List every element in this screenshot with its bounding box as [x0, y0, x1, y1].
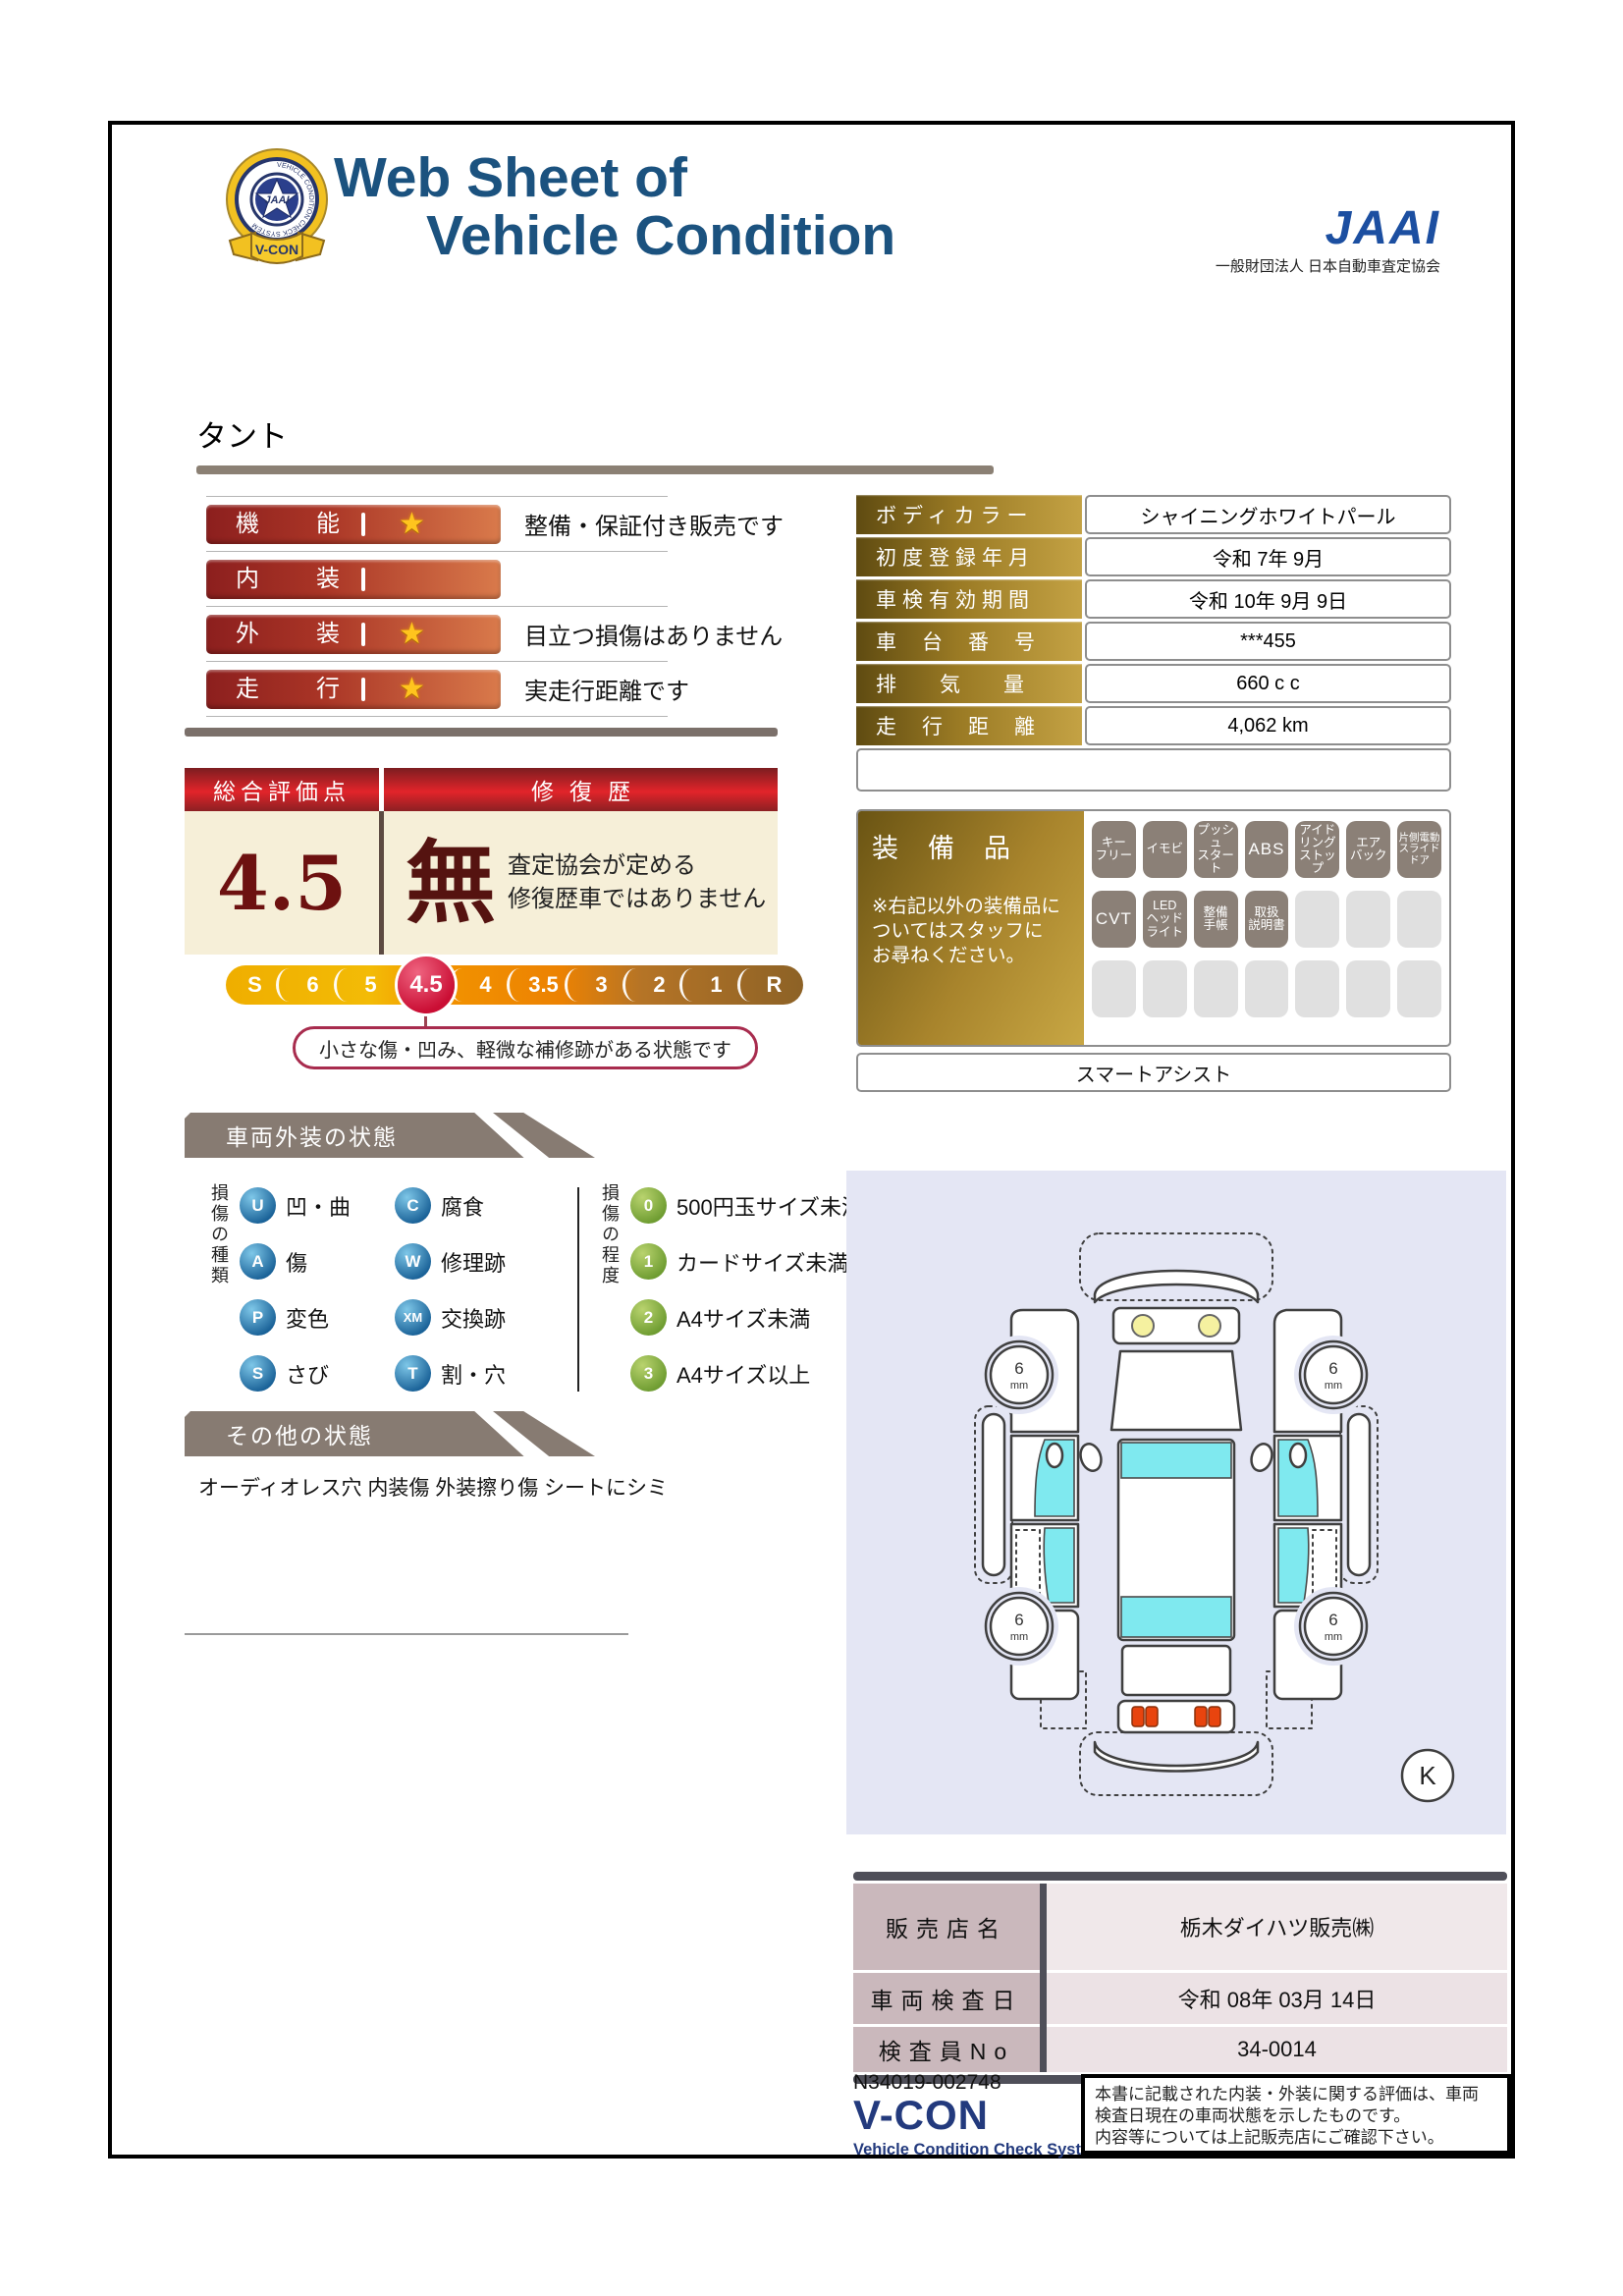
- section-tab-exterior-condition: 車両外装の状態: [185, 1113, 538, 1158]
- mirror-right: [1248, 1442, 1275, 1474]
- equipment-badge-immobilizer: イモビ: [1143, 821, 1187, 878]
- divider: [185, 1633, 628, 1635]
- svg-text:mm: mm: [1010, 1380, 1028, 1392]
- side-skirt-right: [1348, 1414, 1370, 1575]
- damage-code-p-icon: P: [240, 1299, 276, 1336]
- equipment-badge-service-book: 整備 手帳: [1194, 891, 1238, 948]
- damage-label: 修理跡: [441, 1246, 506, 1278]
- repair-history-mark: 無: [406, 838, 496, 928]
- grade-callout: 小さな傷・凹み、軽微な補修跡がある状態です: [293, 1026, 758, 1069]
- grade-scale: S 6 5 4.5 4 3.5 3 2 1 R: [226, 965, 803, 1005]
- car-exploded-view: 6 mm 6 mm 6 mm 6 mm: [846, 1171, 1506, 1834]
- equipment-badge-empty: [1346, 960, 1390, 1017]
- tire-front-left: 6 mm: [980, 1336, 1058, 1414]
- damage-legend: 損傷の種類 U凹・曲 C腐食 A傷 W修理跡 P変色 XM交換跡 Sさび T割・…: [206, 1172, 762, 1407]
- equipment-badge-empty: [1397, 891, 1441, 948]
- vehicle-condition-sheet: VEHICLE CONDITION CHECK SYSTEM JAAI V-CO…: [108, 121, 1515, 2159]
- tailgate-panel: [1122, 1646, 1230, 1695]
- degree-0-icon: 0: [630, 1187, 667, 1224]
- page-title-line2: Vehicle Condition: [426, 208, 895, 264]
- mirror-left: [1077, 1442, 1105, 1474]
- spec-label-first-registration: 初度登録年月: [856, 537, 1082, 576]
- dealer-name-value: 栃木ダイハツ販売㈱: [1047, 1884, 1507, 1970]
- tire-rear-right: 6 mm: [1294, 1587, 1373, 1666]
- equipment-badge-empty: [1245, 960, 1289, 1017]
- page-title: Web Sheet of Vehicle Condition: [334, 150, 895, 264]
- vehicle-name: タント: [196, 411, 288, 456]
- overall-score-title: 総合評価点: [185, 768, 379, 811]
- inspector-no-value: 34-0014: [1047, 2027, 1507, 2072]
- overall-score-body: 4.5 無 査定協会が定める 修復歴車ではありません: [185, 811, 778, 955]
- rating-note: 整備・保証付き販売です: [524, 507, 784, 541]
- damage-code-w-icon: W: [395, 1243, 431, 1280]
- spec-value-displacement: 660 c c: [1085, 664, 1451, 703]
- damage-label: 傷: [286, 1246, 307, 1278]
- list-item: 1カードサイズ未満: [630, 1243, 863, 1280]
- damage-label: 変色: [286, 1302, 329, 1334]
- callout-connector: [424, 1011, 427, 1027]
- jaai-subtitle: 一般財団法人 日本自動車査定協会: [1216, 255, 1440, 276]
- front-glass: [1121, 1443, 1231, 1478]
- grade-r: R: [745, 965, 803, 1005]
- equipment-badge-airbag: エア バック: [1346, 821, 1390, 878]
- rating-row-mileage: 走行 ★ 実走行距離です: [206, 661, 668, 716]
- rating-bar: 内装: [206, 560, 501, 599]
- dealer-table: 販売店名 栃木ダイハツ販売㈱ 車両検査日 令和 08年 03月 14日 検査員N…: [853, 1872, 1507, 2084]
- table-row: 初度登録年月 令和 7年 9月: [856, 537, 1451, 576]
- hood-panel: [1111, 1351, 1241, 1430]
- tire-front-right: 6 mm: [1294, 1336, 1373, 1414]
- divider: [361, 513, 365, 536]
- rating-label: 外装: [236, 615, 361, 654]
- svg-text:6: 6: [1014, 1359, 1023, 1378]
- divider: [1040, 1884, 1047, 2072]
- rating-bar: 機能 ★: [206, 505, 501, 544]
- degree-label: A4サイズ未満: [676, 1302, 810, 1334]
- degree-label: A4サイズ以上: [676, 1358, 810, 1390]
- equipment-badge-led-headlight: LED ヘッド ライト: [1143, 891, 1187, 948]
- page-title-line1: Web Sheet of: [334, 150, 895, 206]
- damage-code-s-icon: S: [240, 1355, 276, 1392]
- taillight-left: [1132, 1707, 1144, 1726]
- list-item: P変色: [240, 1299, 395, 1336]
- damage-degrees-title: 損傷の程度: [597, 1183, 622, 1395]
- equipment-badge-empty: [1143, 960, 1187, 1017]
- table-top-bar: [853, 1872, 1507, 1881]
- jaai-logo: JAAI: [1216, 205, 1440, 252]
- dealer-name-label: 販売店名: [853, 1884, 1040, 1970]
- vcon-badge-logo: VEHICLE CONDITION CHECK SYSTEM JAAI V-CO…: [222, 146, 332, 280]
- repair-history-title: 修復歴: [384, 768, 778, 811]
- equipment-badge-pushstart: プッシュ スタート: [1194, 821, 1238, 878]
- spec-value-first-registration: 令和 7年 9月: [1085, 537, 1451, 576]
- equipment-badge-manual: 取扱 説明書: [1245, 891, 1289, 948]
- rating-note: 目立つ損傷はありません: [524, 617, 783, 651]
- equipment-badge-empty: [1346, 891, 1390, 948]
- damage-degrees-list: 0500円玉サイズ未満 1カードサイズ未満 2A4サイズ未満 3A4サイズ以上: [630, 1177, 863, 1401]
- equipment-badge-empty: [1295, 891, 1339, 948]
- list-item: 0500円玉サイズ未満: [630, 1187, 863, 1224]
- rating-label: 内装: [236, 560, 361, 599]
- vcon-logo-subtitle: Vehicle Condition Check System: [853, 2141, 1105, 2159]
- star-icon: ★: [399, 670, 425, 709]
- rear-bumper: [1095, 1742, 1258, 1772]
- equipment-panel: 装備品 ※右記以外の装備品に ついてはスタッフに お尋ねください。 キー フリー…: [856, 809, 1451, 1047]
- svg-text:mm: mm: [1325, 1631, 1342, 1643]
- badge-ribbon-text: V-CON: [255, 242, 298, 257]
- equipment-title: 装備品: [872, 827, 1070, 865]
- vcon-wordmark: V-CON Vehicle Condition Check System: [853, 2095, 1105, 2159]
- list-item: T割・穴: [395, 1355, 560, 1392]
- damage-code-xm-icon: XM: [395, 1299, 431, 1336]
- table-row: 車検有効期間 令和 10年 9月 9日: [856, 579, 1451, 619]
- equipment-badge-keyfree: キー フリー: [1092, 821, 1136, 878]
- table-row: 検査員No 34-0014: [853, 2027, 1507, 2072]
- smart-assist-row: スマートアシスト: [856, 1053, 1451, 1092]
- damage-label: 凹・曲: [286, 1190, 351, 1222]
- overall-score-header: 総合評価点 修復歴: [185, 768, 778, 811]
- list-item: U凹・曲: [240, 1187, 395, 1224]
- svg-text:6: 6: [1328, 1359, 1337, 1378]
- svg-text:6: 6: [1328, 1611, 1337, 1629]
- degree-1-icon: 1: [630, 1243, 667, 1280]
- list-item: 2A4サイズ未満: [630, 1299, 863, 1336]
- taillight-right: [1195, 1707, 1207, 1726]
- damage-types-grid: U凹・曲 C腐食 A傷 W修理跡 P変色 XM交換跡 Sさび T割・穴: [240, 1177, 560, 1401]
- equipment-badge-empty: [1397, 960, 1441, 1017]
- side-skirt-left: [983, 1414, 1004, 1575]
- grade-mark-badge: K: [1402, 1750, 1453, 1801]
- divider: [361, 623, 365, 646]
- front-bumper: [1095, 1271, 1258, 1302]
- spec-label-displacement: 排気量: [856, 664, 1082, 703]
- spec-value-inspection-valid: 令和 10年 9月 9日: [1085, 579, 1451, 619]
- headlight-left: [1132, 1315, 1154, 1337]
- rating-label: 走行: [236, 670, 361, 709]
- divider: [361, 678, 365, 701]
- spec-value-mileage: 4,062 km: [1085, 706, 1451, 745]
- ratings-block: 機能 ★ 整備・保証付き販売です 内装 外装 ★ 目立つ損傷はありません: [206, 496, 668, 717]
- damage-label: 割・穴: [441, 1358, 506, 1390]
- damage-code-u-icon: U: [240, 1187, 276, 1224]
- spec-label-inspection-valid: 車検有効期間: [856, 579, 1082, 619]
- spec-label-chassis-number: 車台番号: [856, 622, 1082, 661]
- inspection-date-value: 令和 08年 03月 14日: [1047, 1973, 1507, 2024]
- list-item: XM交換跡: [395, 1299, 560, 1336]
- list-item: 3A4サイズ以上: [630, 1355, 863, 1392]
- table-row: 販売店名 栃木ダイハツ販売㈱: [853, 1884, 1507, 1970]
- equipment-badge-empty: [1194, 960, 1238, 1017]
- rating-bar: 外装 ★: [206, 615, 501, 654]
- equipment-badge-empty: [1295, 960, 1339, 1017]
- star-icon: ★: [399, 505, 425, 544]
- svg-text:6: 6: [1014, 1611, 1023, 1629]
- spec-label-mileage: 走行距離: [856, 706, 1082, 745]
- equipment-grid: キー フリー イモビ プッシュ スタート ABS アイド リング ストップ エア…: [1084, 811, 1449, 1045]
- table-row: 走行距離 4,062 km: [856, 706, 1451, 745]
- rating-label: 機能: [236, 505, 361, 544]
- repair-history-note: 査定協会が定める 修復歴車ではありません: [508, 849, 766, 915]
- degree-2-icon: 2: [630, 1299, 667, 1336]
- damage-label: 腐食: [441, 1190, 484, 1222]
- divider: [361, 568, 365, 591]
- grade-5: 5: [342, 965, 400, 1005]
- table-row: 排気量 660 c c: [856, 664, 1451, 703]
- inspection-date-label: 車両検査日: [853, 1973, 1040, 2024]
- equipment-note: ※右記以外の装備品に ついてはスタッフに お尋ねください。: [872, 895, 1070, 968]
- rating-row-interior: 内装: [206, 551, 668, 606]
- spec-empty-row: [856, 748, 1451, 792]
- equipment-badge-empty: [1092, 960, 1136, 1017]
- rear-glass: [1121, 1597, 1231, 1637]
- other-condition-text: オーディオレス穴 内装傷 外装擦り傷 シートにシミ: [198, 1472, 668, 1502]
- section-rule: [185, 728, 778, 737]
- inspector-no-label: 検査員No: [853, 2027, 1040, 2072]
- damage-label: さび: [286, 1358, 329, 1390]
- overall-score-value: 4.5: [185, 811, 379, 955]
- rating-bar: 走行 ★: [206, 670, 501, 709]
- vcon-logo-text: V-CON: [853, 2095, 1105, 2136]
- rating-row-exterior: 外装 ★ 目立つ損傷はありません: [206, 606, 668, 661]
- damage-code-t-icon: T: [395, 1355, 431, 1392]
- table-row: 車台番号 ***455: [856, 622, 1451, 661]
- title-rule: [196, 465, 994, 474]
- disclaimer-note: 本書に記載された内装・外装に関する評価は、車両 検査日現在の車両状態を示したもの…: [1081, 2074, 1511, 2155]
- jaai-logo-block: JAAI 一般財団法人 日本自動車査定協会: [1216, 205, 1440, 276]
- equipment-badge-idlingstop: アイド リング ストップ: [1295, 821, 1339, 878]
- svg-text:K: K: [1419, 1761, 1436, 1790]
- spec-table: ボディカラー シャイニングホワイトパール 初度登録年月 令和 7年 9月 車検有…: [856, 495, 1451, 792]
- damage-label: 交換跡: [441, 1302, 506, 1334]
- spec-value-chassis-number: ***455: [1085, 622, 1451, 661]
- svg-text:mm: mm: [1010, 1631, 1028, 1643]
- badge-center-text: JAAI: [264, 194, 290, 206]
- svg-text:mm: mm: [1325, 1380, 1342, 1392]
- equipment-badge-abs: ABS: [1245, 821, 1289, 878]
- divider: [577, 1187, 579, 1392]
- car-diagram-panel: 6 mm 6 mm 6 mm 6 mm: [846, 1171, 1506, 1834]
- table-row: ボディカラー シャイニングホワイトパール: [856, 495, 1451, 534]
- equipment-badge-cvt: CVT: [1092, 891, 1136, 948]
- equipment-badge-power-slide-door: 片側電動 スライド ドア: [1397, 821, 1441, 878]
- headlight-right: [1199, 1315, 1220, 1337]
- degree-label: 500円玉サイズ未満: [676, 1190, 863, 1222]
- table-row: 車両検査日 令和 08年 03月 14日: [853, 1973, 1507, 2024]
- tire-rear-left: 6 mm: [980, 1587, 1058, 1666]
- degree-label: カードサイズ未満: [676, 1246, 848, 1278]
- rating-note: 実走行距離です: [524, 672, 689, 706]
- damage-code-c-icon: C: [395, 1187, 431, 1224]
- list-item: C腐食: [395, 1187, 560, 1224]
- list-item: A傷: [240, 1243, 395, 1280]
- repair-history-cell: 無 査定協会が定める 修復歴車ではありません: [384, 811, 778, 955]
- selected-grade-marker: 4.5: [398, 957, 455, 1013]
- star-icon: ★: [399, 615, 425, 654]
- damage-code-a-icon: A: [240, 1243, 276, 1280]
- list-item: Sさび: [240, 1355, 395, 1392]
- rating-row-function: 機能 ★ 整備・保証付き販売です: [206, 496, 668, 551]
- equipment-label-panel: 装備品 ※右記以外の装備品に ついてはスタッフに お尋ねください。: [858, 811, 1084, 1045]
- spec-value-body-color: シャイニングホワイトパール: [1085, 495, 1451, 534]
- spec-label-body-color: ボディカラー: [856, 495, 1082, 534]
- list-item: W修理跡: [395, 1243, 560, 1280]
- damage-types-title: 損傷の種類: [206, 1183, 232, 1395]
- section-tab-other-condition: その他の状態: [185, 1411, 538, 1456]
- degree-3-icon: 3: [630, 1355, 667, 1392]
